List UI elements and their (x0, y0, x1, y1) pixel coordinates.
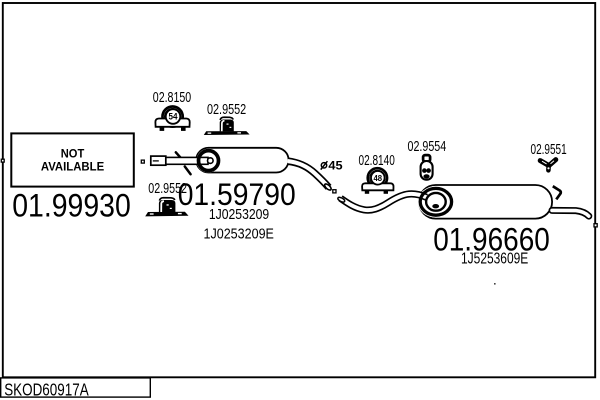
svg-text:AVAILABLE: AVAILABLE (41, 160, 104, 174)
svg-text:01.99930: 01.99930 (12, 187, 131, 224)
svg-text:02.9552: 02.9552 (148, 181, 187, 197)
svg-text:02.8140: 02.8140 (359, 153, 395, 169)
svg-text:45: 45 (328, 158, 343, 172)
svg-text:54: 54 (169, 112, 178, 122)
svg-text:SKOD60917A: SKOD60917A (4, 380, 89, 400)
svg-text:02.9552: 02.9552 (207, 102, 246, 118)
svg-text:1J0253209E: 1J0253209E (204, 226, 274, 242)
svg-text:02.9551: 02.9551 (531, 142, 567, 158)
svg-text:1J0253209: 1J0253209 (209, 207, 269, 223)
svg-text:02.9554: 02.9554 (408, 139, 447, 155)
svg-text:1J5253609E: 1J5253609E (461, 251, 528, 268)
svg-text:02.8150: 02.8150 (153, 90, 191, 106)
svg-text:NOT: NOT (61, 147, 85, 161)
svg-text:48: 48 (374, 173, 383, 183)
